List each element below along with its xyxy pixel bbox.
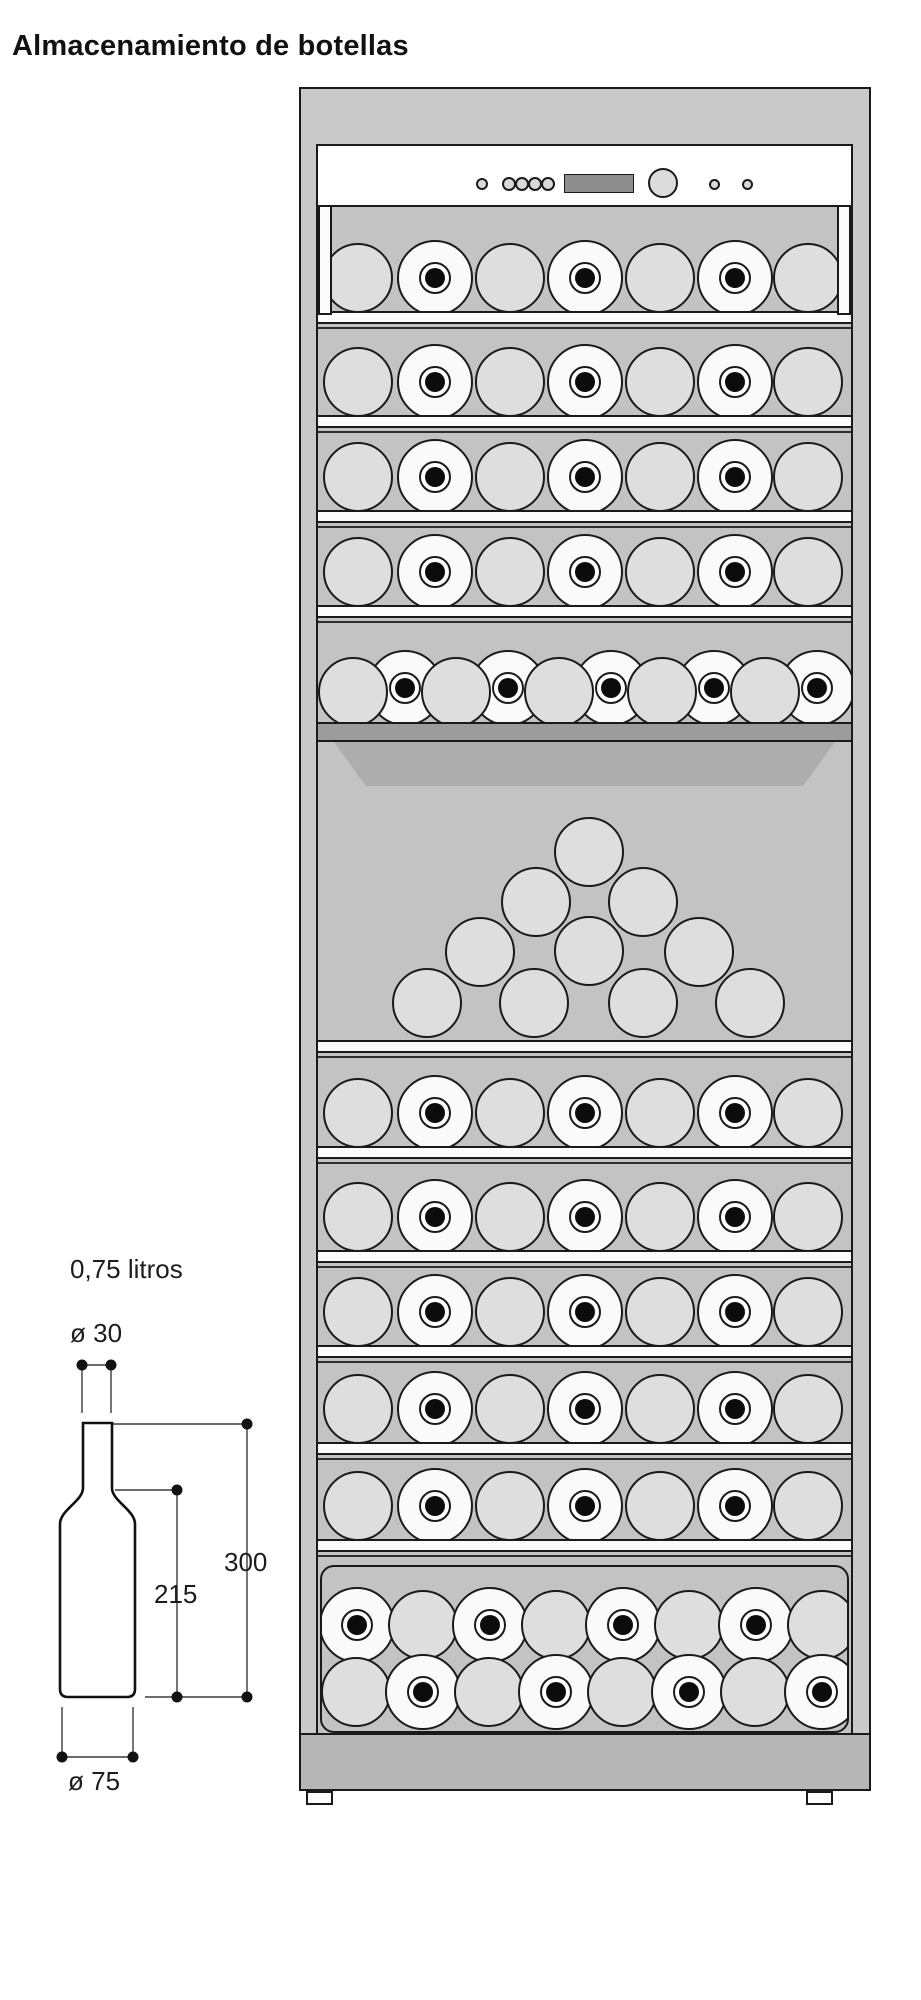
wine-bottle-plain xyxy=(524,657,594,727)
wine-bottle-neck xyxy=(547,1274,623,1350)
wine-bottle-plain xyxy=(608,867,678,937)
wine-bottle-neck xyxy=(697,1371,773,1447)
bottle-cork-dot xyxy=(575,562,595,582)
dimension-dot xyxy=(57,1752,68,1763)
bottle-cork-dot xyxy=(425,1103,445,1123)
indicator-led-1 xyxy=(709,179,720,190)
wine-bottle-plain xyxy=(773,1182,843,1252)
wine-bottle-plain xyxy=(323,1277,393,1347)
wine-bottle-plain xyxy=(323,1471,393,1541)
shelf-rail-left xyxy=(318,205,332,315)
bottle-cork-dot xyxy=(725,1207,745,1227)
wine-bottle-plain xyxy=(388,1590,458,1660)
dimension-dot xyxy=(77,1360,88,1371)
wine-bottle-neck xyxy=(397,240,473,316)
shelf-front-lip xyxy=(318,327,851,329)
shelf xyxy=(318,1442,851,1455)
wine-bottle-plain xyxy=(773,1471,843,1541)
wine-bottle-plain xyxy=(625,347,695,417)
wine-bottle-neck xyxy=(697,534,773,610)
wine-bottle-neck xyxy=(697,240,773,316)
shelf xyxy=(318,1250,851,1263)
wine-bottle-plain xyxy=(392,968,462,1038)
wine-bottle-plain xyxy=(454,1657,524,1727)
volume-label: 0,75 litros xyxy=(70,1254,183,1285)
power-led xyxy=(476,178,488,190)
shelf-front-lip xyxy=(318,1458,851,1460)
wine-bottle-plain xyxy=(421,657,491,727)
panel-button-2 xyxy=(515,177,529,191)
neck-diameter-label: ø 30 xyxy=(70,1318,122,1349)
wine-bottle-neck xyxy=(697,1274,773,1350)
wine-bottle-plain xyxy=(730,657,800,727)
bottle-cork-dot xyxy=(725,1103,745,1123)
wine-bottle-plain xyxy=(445,917,515,987)
neck-diameter-dimension xyxy=(82,1365,111,1413)
bottle-cork-dot xyxy=(575,1207,595,1227)
shelf xyxy=(318,311,851,324)
dimension-dot xyxy=(172,1692,183,1703)
wine-bottle-plain xyxy=(608,968,678,1038)
bottle-cork-dot xyxy=(425,1496,445,1516)
wine-bottle-neck xyxy=(547,1371,623,1447)
wine-bottle-neck xyxy=(697,1468,773,1544)
wine-bottle-neck xyxy=(697,1179,773,1255)
shelf-front-lip xyxy=(318,621,851,623)
wine-bottle-plain xyxy=(475,1374,545,1444)
wine-bottle-neck xyxy=(397,1371,473,1447)
bottle-cork-dot xyxy=(498,678,518,698)
bottle-cork-dot xyxy=(725,1496,745,1516)
bottle-cork-dot xyxy=(601,678,621,698)
wine-bottle-plain xyxy=(323,537,393,607)
wine-bottle-plain xyxy=(554,817,624,887)
bottle-cork-dot xyxy=(812,1682,832,1702)
shelf xyxy=(318,1345,851,1358)
dimension-dot xyxy=(128,1752,139,1763)
body-diameter-dimension xyxy=(62,1707,133,1757)
total-height-label: 300 xyxy=(224,1547,267,1578)
wine-bottle-neck xyxy=(547,1075,623,1151)
dimension-dot xyxy=(106,1360,117,1371)
panel-button-4 xyxy=(541,177,555,191)
bottle-cork-dot xyxy=(425,268,445,288)
bottle-cork-dot xyxy=(347,1615,367,1635)
wine-bottle-plain xyxy=(318,657,388,727)
wine-bottle-neck xyxy=(547,240,623,316)
bottle-cork-dot xyxy=(746,1615,766,1635)
wine-bottle-plain xyxy=(501,867,571,937)
wine-bottle-plain xyxy=(521,1590,591,1660)
shelf-front-lip xyxy=(318,526,851,528)
bottle-cork-dot xyxy=(413,1682,433,1702)
wine-bottle-plain xyxy=(664,917,734,987)
bottle-cork-dot xyxy=(395,678,415,698)
bottle-cork-dot xyxy=(575,1302,595,1322)
wine-bottle-plain xyxy=(715,968,785,1038)
wine-bottle-plain xyxy=(323,347,393,417)
wine-bottle-plain xyxy=(323,1374,393,1444)
bottle-cork-dot xyxy=(480,1615,500,1635)
wine-bottle-plain xyxy=(475,1078,545,1148)
page-title: Almacenamiento de botellas xyxy=(12,30,409,63)
bottle-cork-dot xyxy=(575,1103,595,1123)
wine-bottle-plain xyxy=(475,1182,545,1252)
shelf-front-lip xyxy=(318,1555,851,1557)
wine-bottle-plain xyxy=(475,1471,545,1541)
wine-bottle-plain xyxy=(787,1590,849,1660)
bottle-cork-dot xyxy=(725,372,745,392)
shelf xyxy=(318,1146,851,1159)
wine-bottle-neck xyxy=(320,1587,395,1663)
presentation-shelf-bar xyxy=(318,722,851,742)
wine-bottle-neck xyxy=(397,534,473,610)
bottle-storage-diagram: Almacenamiento de botellas xyxy=(0,0,921,2000)
wine-bottle-plain xyxy=(720,1657,790,1727)
wine-bottle-neck xyxy=(518,1654,594,1730)
dimension-dot xyxy=(172,1485,183,1496)
shelf xyxy=(318,1040,851,1053)
wine-bottle-plain xyxy=(321,1657,391,1727)
wine-bottle-plain xyxy=(773,1374,843,1444)
body-diameter-label: ø 75 xyxy=(68,1766,120,1797)
bottle-cork-dot xyxy=(575,268,595,288)
shelf-front-lip xyxy=(318,431,851,433)
shelf xyxy=(318,510,851,523)
bottle-cork-dot xyxy=(704,678,724,698)
bottle-cork-dot xyxy=(425,562,445,582)
bottle-dimension-drawing xyxy=(0,1350,300,1820)
shelf-front-lip xyxy=(318,1266,851,1268)
wine-bottle-plain xyxy=(323,243,393,313)
bottle-cork-dot xyxy=(725,562,745,582)
wine-bottle-plain xyxy=(625,537,695,607)
wine-bottle-plain xyxy=(773,1277,843,1347)
bottle-cork-dot xyxy=(425,1207,445,1227)
body-height-label: 215 xyxy=(154,1579,197,1610)
shelf xyxy=(318,415,851,428)
wine-bottle-outline xyxy=(60,1423,135,1697)
cabinet-interior xyxy=(316,205,853,1733)
shelf-rail-right xyxy=(837,205,851,315)
bottle-cork-dot xyxy=(546,1682,566,1702)
wine-bottle-plain xyxy=(654,1590,724,1660)
control-panel xyxy=(316,144,853,207)
wine-bottle-neck xyxy=(385,1654,461,1730)
wine-bottle-neck xyxy=(547,344,623,420)
wine-bottle-neck xyxy=(397,1468,473,1544)
wine-bottle-plain xyxy=(323,1078,393,1148)
cabinet-base xyxy=(301,1733,869,1789)
wine-bottle-plain xyxy=(773,347,843,417)
shelf xyxy=(318,605,851,618)
wine-bottle-neck xyxy=(397,1179,473,1255)
temperature-display xyxy=(564,174,634,193)
wine-bottle-plain xyxy=(773,243,843,313)
wine-bottle-plain xyxy=(773,442,843,512)
dimension-dot xyxy=(242,1692,253,1703)
wine-bottle-neck xyxy=(397,1075,473,1151)
bottle-cork-dot xyxy=(425,467,445,487)
wine-bottle-plain xyxy=(625,1078,695,1148)
cabinet-foot-right xyxy=(806,1791,833,1805)
panel-button-3 xyxy=(528,177,542,191)
wine-bottle-plain xyxy=(773,537,843,607)
wine-bottle-plain xyxy=(627,657,697,727)
wine-bottle-neck xyxy=(651,1654,727,1730)
indicator-led-2 xyxy=(742,179,753,190)
wine-bottle-neck xyxy=(397,439,473,515)
wine-bottle-neck xyxy=(697,344,773,420)
wine-bottle-plain xyxy=(323,1182,393,1252)
wine-bottle-neck xyxy=(718,1587,794,1663)
wine-bottle-neck xyxy=(452,1587,528,1663)
wine-bottle-plain xyxy=(475,347,545,417)
wine-bottle-neck xyxy=(585,1587,661,1663)
bottle-cork-dot xyxy=(425,1302,445,1322)
wine-bottle-plain xyxy=(625,1374,695,1444)
wine-bottle-neck xyxy=(547,1179,623,1255)
wine-bottle-plain xyxy=(475,537,545,607)
wine-bottle-neck xyxy=(547,439,623,515)
shelf-front-lip xyxy=(318,1361,851,1363)
wine-bottle-neck xyxy=(547,534,623,610)
wine-bottle-plain xyxy=(475,243,545,313)
bottle-cork-dot xyxy=(725,1302,745,1322)
wine-bottle-neck xyxy=(697,1075,773,1151)
shelf-front-lip xyxy=(318,1162,851,1164)
wine-bottle-neck xyxy=(697,439,773,515)
wine-bottle-plain xyxy=(475,1277,545,1347)
wine-bottle-neck xyxy=(784,1654,849,1730)
dimension-dot xyxy=(242,1419,253,1430)
bottle-cork-dot xyxy=(425,1399,445,1419)
wine-bottle-plain xyxy=(499,968,569,1038)
bottle-cork-dot xyxy=(679,1682,699,1702)
bottle-cork-dot xyxy=(575,372,595,392)
bottle-cork-dot xyxy=(575,1399,595,1419)
wine-bottle-neck xyxy=(397,344,473,420)
wine-bottle-plain xyxy=(625,442,695,512)
bottom-storage-tray xyxy=(320,1565,849,1733)
wine-bottle-plain xyxy=(587,1657,657,1727)
bottle-cork-dot xyxy=(575,1496,595,1516)
shelf-front-lip xyxy=(318,1056,851,1058)
wine-bottle-plain xyxy=(625,1277,695,1347)
bottle-cork-dot xyxy=(425,372,445,392)
wine-bottle-plain xyxy=(554,916,624,986)
wine-bottle-plain xyxy=(625,1182,695,1252)
wine-bottle-plain xyxy=(625,243,695,313)
wine-bottle-neck xyxy=(547,1468,623,1544)
presentation-shelf-front xyxy=(318,742,851,786)
wine-bottle-neck xyxy=(397,1274,473,1350)
bottle-cork-dot xyxy=(613,1615,633,1635)
cabinet-foot-left xyxy=(306,1791,333,1805)
bottle-cork-dot xyxy=(725,467,745,487)
bottle-cork-dot xyxy=(725,1399,745,1419)
wine-bottle-plain xyxy=(625,1471,695,1541)
control-knob xyxy=(648,168,678,198)
panel-button-1 xyxy=(502,177,516,191)
bottle-cork-dot xyxy=(807,678,827,698)
bottle-cork-dot xyxy=(725,268,745,288)
wine-bottle-plain xyxy=(323,442,393,512)
shelf xyxy=(318,1539,851,1552)
bottle-cork-dot xyxy=(575,467,595,487)
wine-bottle-plain xyxy=(773,1078,843,1148)
wine-bottle-plain xyxy=(475,442,545,512)
